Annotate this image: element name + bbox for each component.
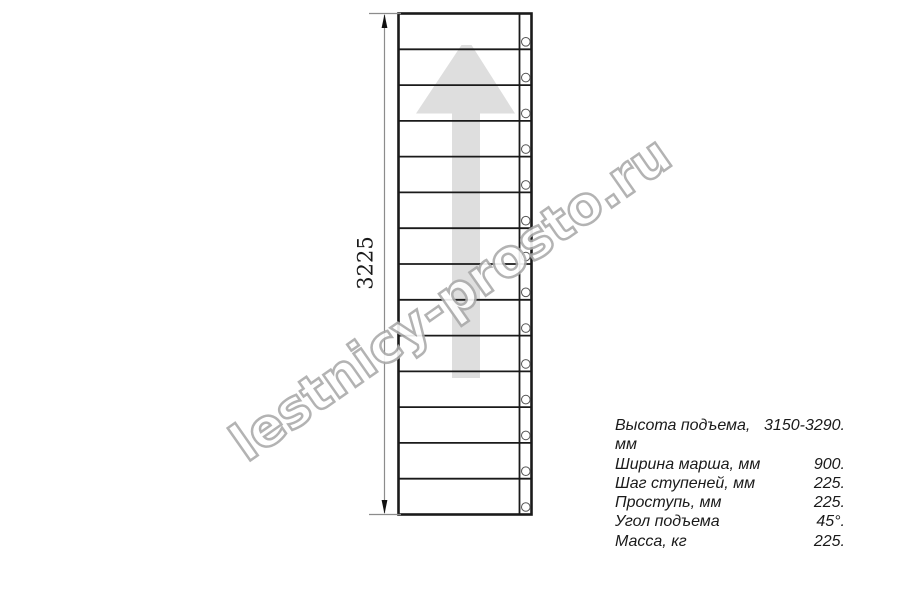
spec-value: 225. [814,474,845,493]
fastener-circle-icon [522,38,531,47]
fastener-circle-icon [522,288,531,297]
spec-label: Ширина марша, мм [615,455,760,474]
spec-label: Высота подъема, мм [615,416,764,455]
spec-value: 900. [814,455,845,474]
spec-value: 3150-3290. [764,416,845,455]
spec-row: Масса, кг 225. [615,532,845,551]
spec-value: 45°. [816,512,845,531]
fastener-circle-icon [522,395,531,404]
fastener-circle-icon [522,324,531,333]
fastener-circle-icon [522,109,531,118]
dimension-arrow-up-icon [382,14,388,28]
fastener-circle-icon [522,360,531,369]
spec-label: Угол подъема [615,512,720,531]
spec-value: 225. [814,493,845,512]
fastener-circle-icon [522,145,531,154]
direction-arrow-icon [416,45,515,378]
dimension-3225: 3225 [354,14,402,515]
fastener-circle-icon [522,181,531,190]
spec-row: Шаг ступеней, мм 225. [615,474,845,493]
fastener-circle-icon [522,252,531,261]
fastener-circle-icon [522,467,531,476]
fastener-circle-icon [522,503,531,512]
spec-list: Высота подъема, мм 3150-3290. Ширина мар… [615,416,845,551]
fastener-circle-icon [522,431,531,440]
spec-row: Проступь, мм 225. [615,493,845,512]
fastener-circles [522,38,531,512]
dimension-label: 3225 [354,236,378,289]
spec-row: Угол подъема 45°. [615,512,845,531]
spec-value: 225. [814,532,845,551]
spec-row: Ширина марша, мм 900. [615,455,845,474]
fastener-circle-icon [522,73,531,82]
spec-row: Высота подъема, мм 3150-3290. [615,416,845,455]
spec-label: Масса, кг [615,532,687,551]
dimension-arrow-down-icon [382,500,388,514]
spec-label: Шаг ступеней, мм [615,474,755,493]
spec-label: Проступь, мм [615,493,721,512]
fastener-circle-icon [522,216,531,225]
